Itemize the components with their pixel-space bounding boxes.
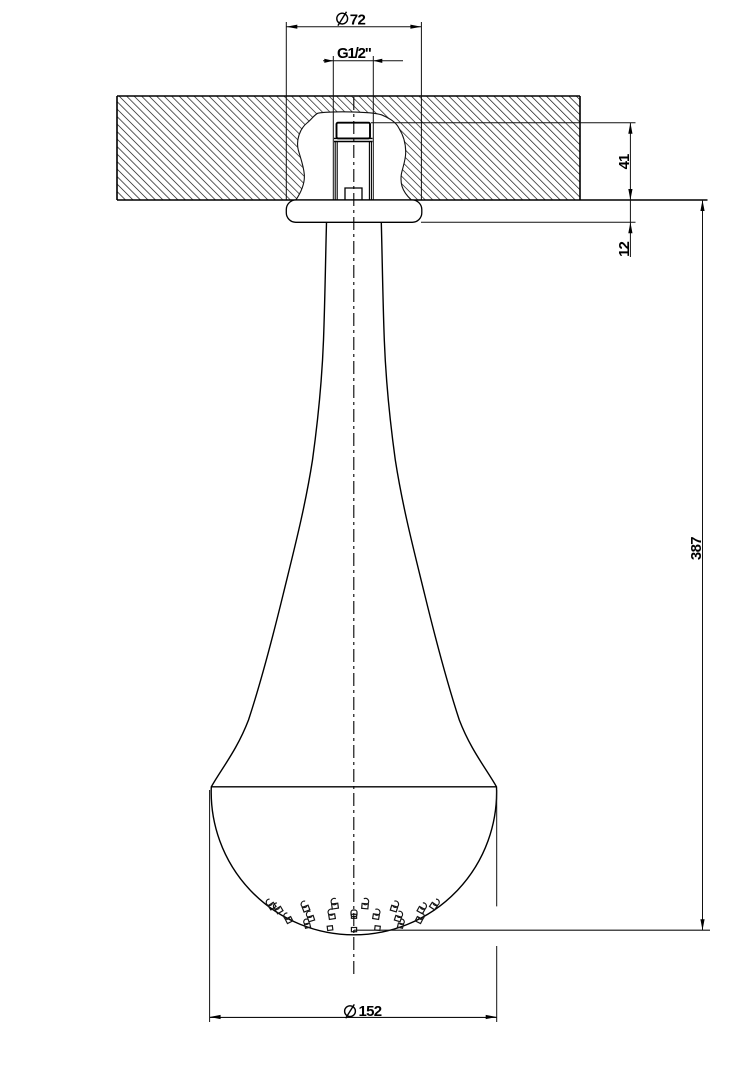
svg-text:G1/2": G1/2" — [337, 45, 372, 62]
svg-text:387: 387 — [688, 537, 705, 560]
svg-text:41: 41 — [616, 154, 633, 169]
svg-text:72: 72 — [350, 12, 366, 29]
svg-text:12: 12 — [616, 242, 633, 257]
svg-text:152: 152 — [359, 1003, 382, 1020]
